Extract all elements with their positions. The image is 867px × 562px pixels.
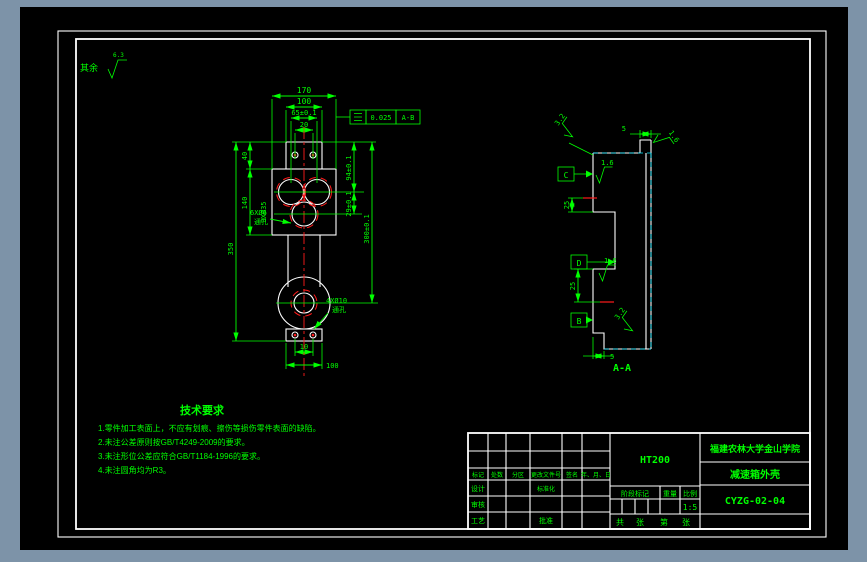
th-sign: 签名 [566,471,578,479]
th-process: 工艺 [471,517,485,525]
datum-b: B [571,313,593,327]
drawing-number: CYZG-02-04 [725,496,785,507]
dim-100-bottom: 100 [326,362,339,370]
dim-350: 350 [227,243,235,256]
th-sheet2: 张 [682,518,690,527]
svg-text:1.6: 1.6 [604,257,617,265]
dim-10: 10 [300,343,308,351]
dim-94: 94±0.1 [345,155,353,180]
th-change-file: 更改文件号 [531,471,561,479]
th-check: 审核 [471,500,485,509]
material: HT200 [640,455,670,466]
th-standardize: 标准化 [537,485,555,493]
dim-20: 20 [300,121,308,129]
surface-note-text: 其余 [80,62,98,73]
th-weight: 重量 [663,490,677,498]
drawing-viewport[interactable]: 其余 6.3 [20,7,848,550]
svg-text:1.6: 1.6 [601,159,614,167]
dim-29: 29±0.1 [345,191,353,216]
part-name: 减速箱外壳 [730,468,780,481]
th-zone: 分区 [512,471,524,479]
roughness-3-2-top: 3.2 [551,112,580,139]
dim-170: 170 [297,86,312,95]
roughness-1-6-mid: 1.6 [596,159,614,183]
dim-mid-25: 25 [563,201,571,209]
hole-callouts: 3XØ35 6XØ6 通孔 4XØ10 通孔 [250,201,347,329]
roughness-1-6-topright: 1.6 [651,126,680,153]
th-sheet1: 张 [636,518,644,527]
th-scale: 比例 [683,489,697,498]
side-view: C D B 3 [551,112,681,374]
callout-4x10: 4XØ10 [326,297,347,305]
dim-140: 140 [241,197,249,210]
front-dimensions: 170 100 65±0.1 20 40 140 350 94±0.1 [227,86,372,370]
surface-note-value: 6.3 [113,52,124,59]
th-total: 共 [616,518,624,527]
section-label: A-A [613,363,631,374]
dim-bottom-5: 5 [610,353,614,361]
callout-6x6: 6XØ6 [250,209,267,217]
callout-6x6-thru: 通孔 [254,217,268,226]
sheet-frame [58,31,826,537]
tech-req-title: 技术要求 [180,403,225,417]
roughness-icon [108,60,127,78]
tech-req-line-1: 1.零件加工表面上，不应有划痕、擦伤等损伤零件表面的缺陷。 [98,423,321,433]
svg-text:1.6: 1.6 [667,129,681,144]
svg-text:3.2: 3.2 [553,112,567,127]
svg-text:B: B [577,317,582,326]
dim-100-top: 100 [297,97,312,106]
th-date: 年、月、日 [581,471,611,479]
front-view: 170 100 65±0.1 20 40 140 350 94±0.1 [227,86,420,379]
datum-c: C [558,167,593,181]
gtol-datum: A-B [402,114,415,122]
dim-65: 65±0.1 [291,109,316,117]
svg-text:3.2: 3.2 [613,306,627,321]
school-name: 福建农林大学金山学院 [709,443,800,454]
svg-text:D: D [577,259,582,268]
tech-req-line-3: 3.未注形位公差应符合GB/T1184-1996的要求。 [98,451,265,461]
dim-low-25: 25 [569,282,577,290]
dim-top-5: 5 [622,125,626,133]
th-mark: 标记 [472,471,484,479]
gtol-value: 0.025 [370,114,391,122]
th-page: 第 [660,517,668,527]
engineering-drawing: 其余 6.3 [20,7,848,550]
svg-text:C: C [564,171,569,180]
th-approve: 批准 [539,516,553,525]
roughness-3-2-bottom: 3.2 [611,306,640,333]
scale-value: 1:5 [683,503,698,512]
dim-300: 300±0.1 [363,214,371,244]
symmetry-icon [354,114,362,121]
surface-finish-note: 其余 6.3 [80,52,127,78]
th-design: 设计 [471,484,485,493]
tech-req-line-4: 4.未注圆角均为R3。 [98,465,171,475]
cad-application-window: 其余 6.3 [0,0,867,562]
th-count: 处数 [491,471,503,479]
gtol-frame: 0.025 A-B [336,110,420,124]
title-block: 标记 处数 分区 更改文件号 签名 年、月、日 设计 标准化 审核 工艺 批准 … [468,433,810,529]
th-stage: 阶段标记 [621,489,649,498]
tech-requirements: 技术要求 1.零件加工表面上，不应有划痕、擦伤等损伤零件表面的缺陷。 2.未注公… [98,403,321,475]
tech-req-line-2: 2.未注公差原则按GB/T4249-2009的要求。 [98,437,250,447]
dim-40: 40 [241,152,249,160]
callout-4x10-thru: 通孔 [332,305,346,314]
